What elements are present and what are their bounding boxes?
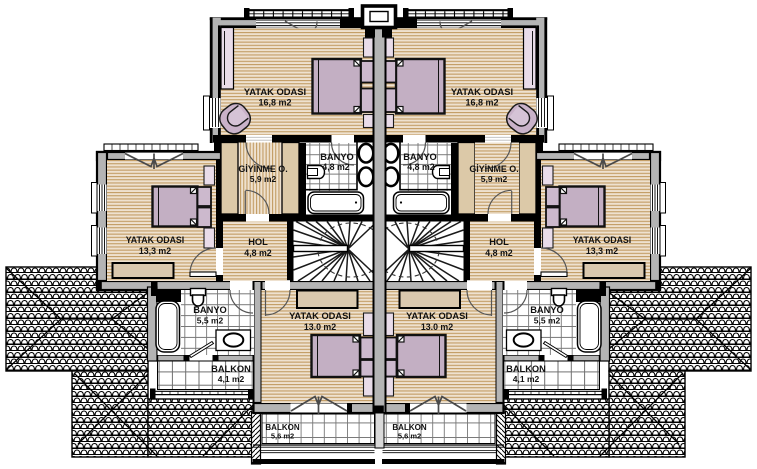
- svg-text:YATAK ODASI: YATAK ODASI: [244, 86, 306, 97]
- svg-text:BANYO: BANYO: [193, 305, 227, 315]
- svg-text:YATAK ODASI: YATAK ODASI: [573, 235, 632, 245]
- svg-text:HOL: HOL: [248, 237, 268, 247]
- svg-text:YATAK ODASI: YATAK ODASI: [451, 86, 513, 97]
- svg-text:GİYİNME O.: GİYİNME O.: [469, 164, 518, 174]
- svg-text:16,8 m2: 16,8 m2: [258, 98, 291, 108]
- svg-text:BANYO: BANYO: [320, 152, 354, 162]
- svg-text:13,3 m2: 13,3 m2: [586, 246, 618, 256]
- svg-text:5,5 m2: 5,5 m2: [197, 316, 224, 326]
- svg-text:13.0 m2: 13.0 m2: [421, 322, 453, 332]
- svg-text:5,9 m2: 5,9 m2: [481, 174, 508, 184]
- svg-text:4,8 m2: 4,8 m2: [407, 162, 434, 172]
- svg-text:4,8 m2: 4,8 m2: [322, 162, 349, 172]
- svg-text:YATAK ODASI: YATAK ODASI: [406, 311, 468, 321]
- svg-text:BANYO: BANYO: [530, 305, 564, 315]
- svg-text:4,8 m2: 4,8 m2: [244, 248, 271, 258]
- svg-text:13.0 m2: 13.0 m2: [304, 322, 336, 332]
- svg-text:BALKON: BALKON: [211, 364, 251, 374]
- svg-text:13,3 m2: 13,3 m2: [139, 246, 171, 256]
- svg-text:5,9 m2: 5,9 m2: [250, 174, 277, 184]
- svg-text:4,1 m2: 4,1 m2: [218, 374, 245, 384]
- svg-text:YATAK ODASI: YATAK ODASI: [289, 311, 351, 321]
- svg-text:5,5 m2: 5,5 m2: [534, 316, 561, 326]
- svg-text:HOL: HOL: [489, 237, 509, 247]
- svg-text:5,6 m2: 5,6 m2: [398, 432, 421, 441]
- svg-text:4,8 m2: 4,8 m2: [485, 248, 512, 258]
- svg-text:YATAK ODASI: YATAK ODASI: [126, 235, 185, 245]
- svg-text:GİYİNME O.: GİYİNME O.: [238, 164, 287, 174]
- svg-text:4,1 m2: 4,1 m2: [513, 374, 540, 384]
- svg-text:BANYO: BANYO: [403, 152, 437, 162]
- svg-text:BALKON: BALKON: [506, 364, 546, 374]
- svg-text:5,6 m2: 5,6 m2: [271, 432, 294, 441]
- svg-text:16,8 m2: 16,8 m2: [465, 98, 498, 108]
